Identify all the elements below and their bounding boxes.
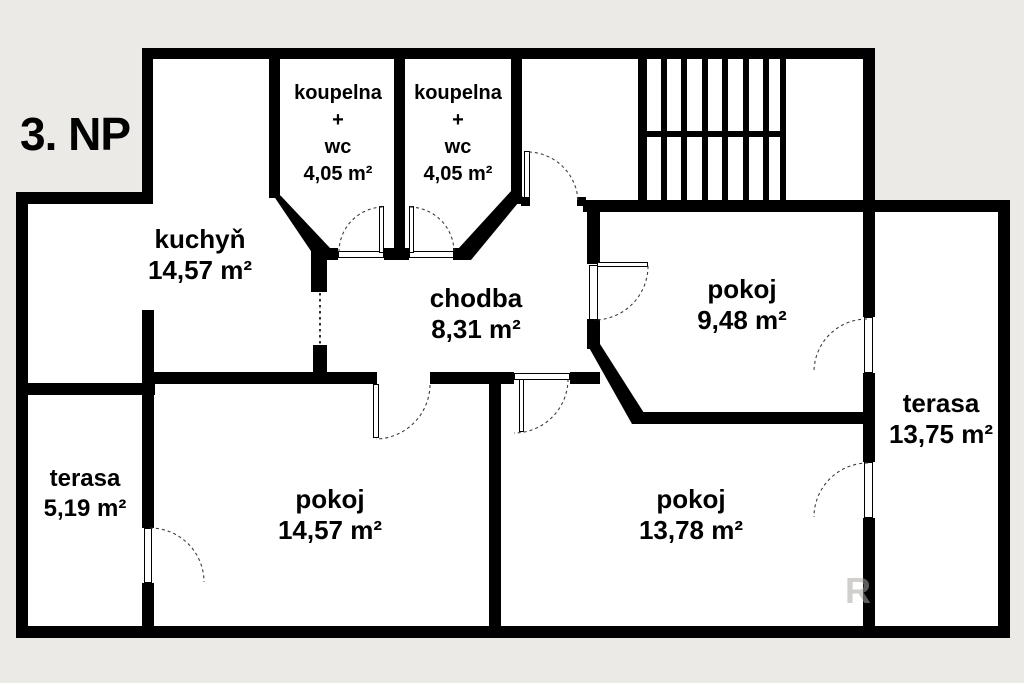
wall-hall-right-upper	[587, 212, 600, 264]
door-leaf-pokoj1378	[520, 380, 524, 432]
room-label-kuchyn: kuchyň 14,57 m²	[118, 224, 282, 286]
wall-kitchen-stub-upper	[311, 250, 327, 292]
floor-title: 3. NP	[20, 107, 130, 161]
door-frame-bath1	[339, 252, 384, 258]
room-area: 5,19 m²	[5, 494, 165, 524]
room-label-chodba: chodba 8,31 m²	[395, 283, 557, 345]
room-area: 13,75 m²	[860, 419, 1022, 450]
stair-tread	[681, 58, 687, 200]
wall-top	[142, 48, 875, 59]
wall-bottom-outer	[16, 626, 1010, 638]
room-label-terasa-leva: terasa 5,19 m²	[5, 464, 165, 524]
room-area: 4,05 m²	[272, 161, 404, 188]
wall-terrace-left-upper	[863, 48, 875, 317]
room-name: chodba	[395, 283, 557, 314]
stair-tread	[702, 58, 708, 200]
room-label-koupelna-2: koupelna + wc 4,05 m²	[396, 80, 520, 188]
room-area: 14,57 m²	[118, 255, 282, 286]
wall-upper-horizontal	[583, 200, 1010, 212]
room-type: wc	[396, 134, 520, 161]
wall-terasa-left-right-lower	[142, 583, 154, 638]
room-area: 13,78 m²	[610, 515, 772, 546]
stair-landing-divider	[638, 131, 786, 137]
wall-kitchen-stub-lower	[313, 345, 327, 384]
room-name: pokoj	[610, 484, 772, 515]
room-name: kuchyň	[118, 224, 282, 255]
door-leaf-bath2	[410, 207, 414, 253]
room-label-pokoj-levy: pokoj 14,57 m²	[249, 484, 411, 546]
door-leaf-pokoj948	[598, 263, 648, 267]
wall-terasa-left-top	[16, 383, 155, 395]
wall-central	[489, 384, 501, 638]
room-name: terasa	[5, 464, 165, 494]
door-jamb-stairs-left	[521, 197, 530, 206]
room-label-koupelna-1: koupelna + wc 4,05 m²	[272, 80, 404, 188]
room-plus: +	[396, 107, 520, 134]
room-area: 14,57 m²	[249, 515, 411, 546]
room-name: terasa	[860, 388, 1022, 419]
door-leaf-stairs	[525, 152, 530, 203]
stair-edge-line	[780, 58, 786, 200]
wall-kitchen-left	[142, 48, 153, 204]
stair-tread	[763, 58, 769, 200]
wall-pokoj948-bottom	[632, 412, 875, 424]
door-frame-pokoj1378	[515, 374, 570, 380]
stair-tread	[722, 58, 728, 200]
stair-tread	[743, 58, 749, 200]
door-frame-terasa-upper	[865, 318, 873, 373]
room-label-terasa-prava: terasa 13,75 m²	[860, 388, 1022, 450]
stair-tread	[661, 58, 667, 200]
room-name: koupelna	[396, 80, 520, 107]
room-name: pokoj	[249, 484, 411, 515]
door-frame-bath2	[410, 252, 454, 258]
stair-side-line	[638, 58, 647, 200]
room-label-pokoj-pravy: pokoj 13,78 m²	[610, 484, 772, 546]
wall-hall-bottom-right	[570, 372, 600, 384]
room-area: 4,05 m²	[396, 161, 520, 188]
door-frame-terasa-lower	[865, 463, 873, 518]
room-area: 9,48 m²	[661, 305, 823, 336]
room-label-pokoj-horni: pokoj 9,48 m²	[661, 274, 823, 336]
room-name: pokoj	[661, 274, 823, 305]
room-area: 8,31 m²	[395, 314, 557, 345]
door-frame-terasa-left	[145, 529, 152, 583]
door-leaf-pokoj1457	[374, 385, 379, 438]
room-type: wc	[272, 134, 404, 161]
room-plus: +	[272, 107, 404, 134]
wall-hall-bottom-mid	[430, 372, 514, 384]
door-frame-pokoj948	[590, 266, 598, 320]
wall-left-outer	[16, 192, 28, 638]
watermark-text: R	[845, 570, 871, 611]
room-name: koupelna	[272, 80, 404, 107]
floor-plan-canvas: R	[0, 0, 1024, 683]
door-leaf-bath1	[380, 207, 384, 253]
wall-step	[16, 192, 150, 204]
wall-kitchen-bottom	[142, 372, 377, 384]
